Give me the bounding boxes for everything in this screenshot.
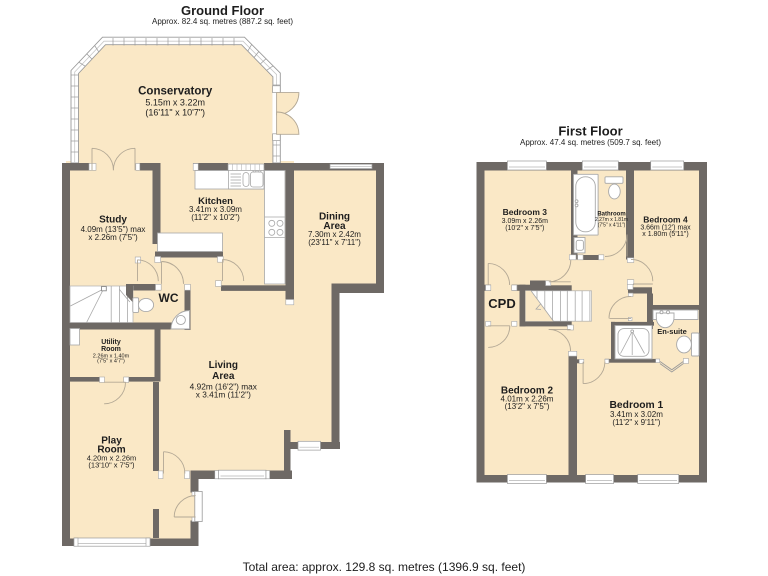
- svg-text:Bedroom 4: Bedroom 4: [643, 215, 688, 225]
- svg-text:(23'11" x 7'11"): (23'11" x 7'11"): [308, 238, 361, 247]
- svg-text:(16'11" x 10'7"): (16'11" x 10'7"): [145, 108, 205, 118]
- svg-text:Living: Living: [209, 360, 238, 371]
- svg-text:5.15m x 3.22m: 5.15m x 3.22m: [145, 98, 205, 108]
- svg-text:Conservatory: Conservatory: [138, 86, 213, 98]
- svg-text:Room: Room: [101, 346, 121, 353]
- svg-text:Ground Floor: Ground Floor: [181, 3, 264, 18]
- svg-text:(13'2" x 7'5"): (13'2" x 7'5"): [505, 402, 550, 411]
- svg-text:(10'2" x 7'5"): (10'2" x 7'5"): [505, 225, 544, 232]
- svg-text:(13'10" x 7'5"): (13'10" x 7'5"): [88, 460, 135, 469]
- svg-text:CPD: CPD: [488, 296, 515, 311]
- svg-text:Total area: approx. 129.8 sq.: Total area: approx. 129.8 sq. metres (13…: [243, 560, 526, 574]
- svg-text:Study: Study: [99, 214, 127, 225]
- svg-text:(7'5" x 4'11"): (7'5" x 4'11"): [598, 222, 626, 228]
- svg-text:(11'2" x 9'11"): (11'2" x 9'11"): [612, 418, 660, 427]
- svg-text:x 3.41m (11'2"): x 3.41m (11'2"): [196, 390, 251, 400]
- svg-text:(11'2" x 10'2"): (11'2" x 10'2"): [191, 213, 240, 222]
- svg-text:Approx. 47.4 sq. metres (509.7: Approx. 47.4 sq. metres (509.7 sq. feet): [520, 138, 661, 147]
- svg-text:x 2.26m (7'5"): x 2.26m (7'5"): [88, 233, 138, 242]
- svg-text:x 1.80m (5'11"): x 1.80m (5'11"): [642, 231, 689, 238]
- svg-text:Utility: Utility: [101, 339, 121, 346]
- svg-text:First Floor: First Floor: [558, 124, 622, 139]
- svg-text:Approx. 82.4 sq. metres (887.2: Approx. 82.4 sq. metres (887.2 sq. feet): [152, 17, 293, 26]
- svg-text:(7'5" x 4'7"): (7'5" x 4'7"): [97, 359, 125, 365]
- svg-text:En-suite: En-suite: [657, 327, 687, 336]
- svg-text:WC: WC: [159, 291, 179, 305]
- svg-text:Bedroom 3: Bedroom 3: [503, 207, 548, 217]
- svg-text:3.09m x 2.26m: 3.09m x 2.26m: [502, 218, 548, 225]
